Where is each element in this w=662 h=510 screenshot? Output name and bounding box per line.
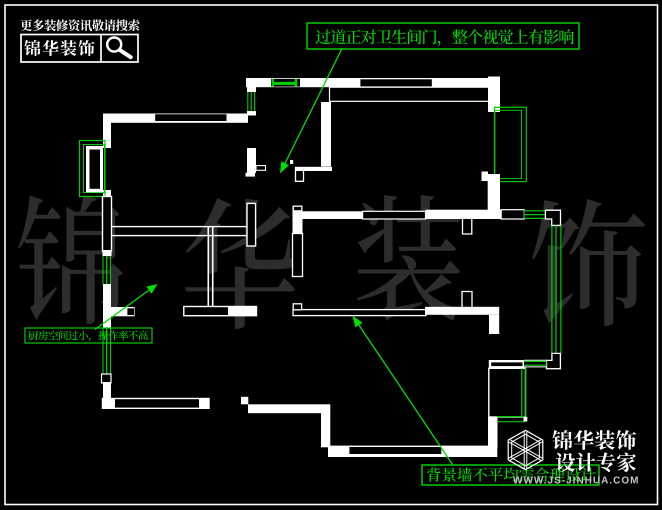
svg-text:WWW.JS-JINHUA.COM: WWW.JS-JINHUA.COM <box>513 476 639 487</box>
